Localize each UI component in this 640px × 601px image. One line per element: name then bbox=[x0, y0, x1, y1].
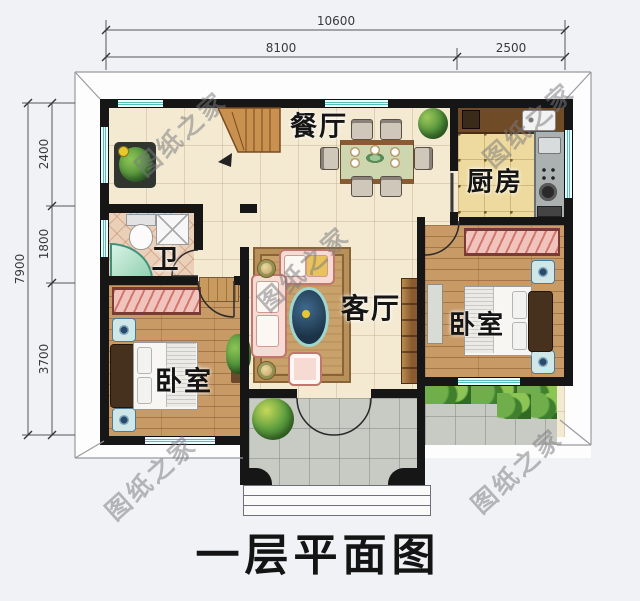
nightstand bbox=[112, 318, 136, 342]
entry-steps bbox=[243, 485, 431, 516]
pillow bbox=[137, 377, 152, 404]
floor-plan: 餐厅 厨房 卫 客厅 卧室 卧室 10600 8100 2500 7900 24… bbox=[0, 0, 640, 601]
nightstand bbox=[531, 260, 555, 284]
ottoman bbox=[288, 352, 322, 386]
wall-stub bbox=[240, 204, 257, 213]
dim-left-c: 3700 bbox=[37, 344, 51, 375]
dim-top-a: 8100 bbox=[266, 41, 297, 55]
window-left-1 bbox=[100, 127, 109, 183]
dim-left-a: 2400 bbox=[37, 139, 51, 170]
plant-icon bbox=[418, 108, 448, 139]
plan-title: 一层平面图 bbox=[196, 519, 441, 583]
wardrobe-left bbox=[112, 287, 201, 315]
wall-living-bottom-b bbox=[371, 389, 417, 398]
dim-top-total: 10600 bbox=[317, 14, 355, 28]
wall-kitchen-left-b bbox=[450, 212, 458, 225]
wall-living-bottom-a bbox=[249, 389, 297, 398]
dim-left-total: 7900 bbox=[13, 254, 27, 285]
dresser bbox=[427, 284, 443, 344]
dim-top-b: 2500 bbox=[496, 41, 527, 55]
dim-left-b: 1800 bbox=[37, 229, 51, 260]
kitchen-basin bbox=[538, 137, 561, 154]
dining-chair bbox=[414, 147, 433, 170]
kitchen-oven bbox=[537, 206, 562, 217]
bed-headboard bbox=[528, 291, 553, 352]
nightstand bbox=[531, 350, 555, 374]
window-top-1 bbox=[118, 99, 163, 108]
pillow bbox=[512, 322, 527, 350]
shoe-cabinet bbox=[199, 277, 239, 302]
pillow bbox=[512, 291, 527, 319]
rug-medallion bbox=[257, 361, 276, 380]
dining-chair bbox=[351, 176, 373, 197]
dining-chair bbox=[320, 147, 339, 170]
window-left-2 bbox=[100, 220, 109, 257]
porch-post-right bbox=[388, 468, 425, 485]
toilet-icon bbox=[129, 224, 153, 250]
table-decor bbox=[302, 310, 310, 318]
window-right-kitchen bbox=[564, 130, 573, 198]
dining-chair bbox=[380, 176, 402, 197]
pillow bbox=[137, 347, 152, 374]
label-living: 客厅 bbox=[341, 287, 401, 327]
nightstand bbox=[112, 408, 136, 432]
wall-bath-right bbox=[194, 204, 203, 250]
window-bedroomR-bottom bbox=[458, 377, 520, 386]
dining-chair bbox=[380, 119, 402, 140]
label-bedroom-right: 卧室 bbox=[449, 305, 505, 342]
wall-bedroomR-top bbox=[459, 217, 565, 225]
wall-bedroomL-corner bbox=[234, 276, 249, 285]
label-bathroom: 卫 bbox=[152, 238, 181, 277]
label-bedroom-left: 卧室 bbox=[155, 360, 213, 399]
wardrobe-right bbox=[464, 228, 560, 256]
wall-kitchen-left-a bbox=[450, 107, 458, 171]
sofa-cushion bbox=[256, 315, 279, 347]
dining-chair bbox=[351, 119, 373, 140]
kitchen-appliance bbox=[462, 110, 480, 129]
label-dining: 餐厅 bbox=[290, 105, 348, 144]
porch-bush-icon bbox=[252, 398, 294, 440]
stove-burner-icon bbox=[539, 183, 557, 201]
wall-bath-top bbox=[100, 204, 203, 213]
wall-bedroomL-top bbox=[108, 276, 198, 285]
wall-living-bedroomR bbox=[417, 217, 425, 485]
